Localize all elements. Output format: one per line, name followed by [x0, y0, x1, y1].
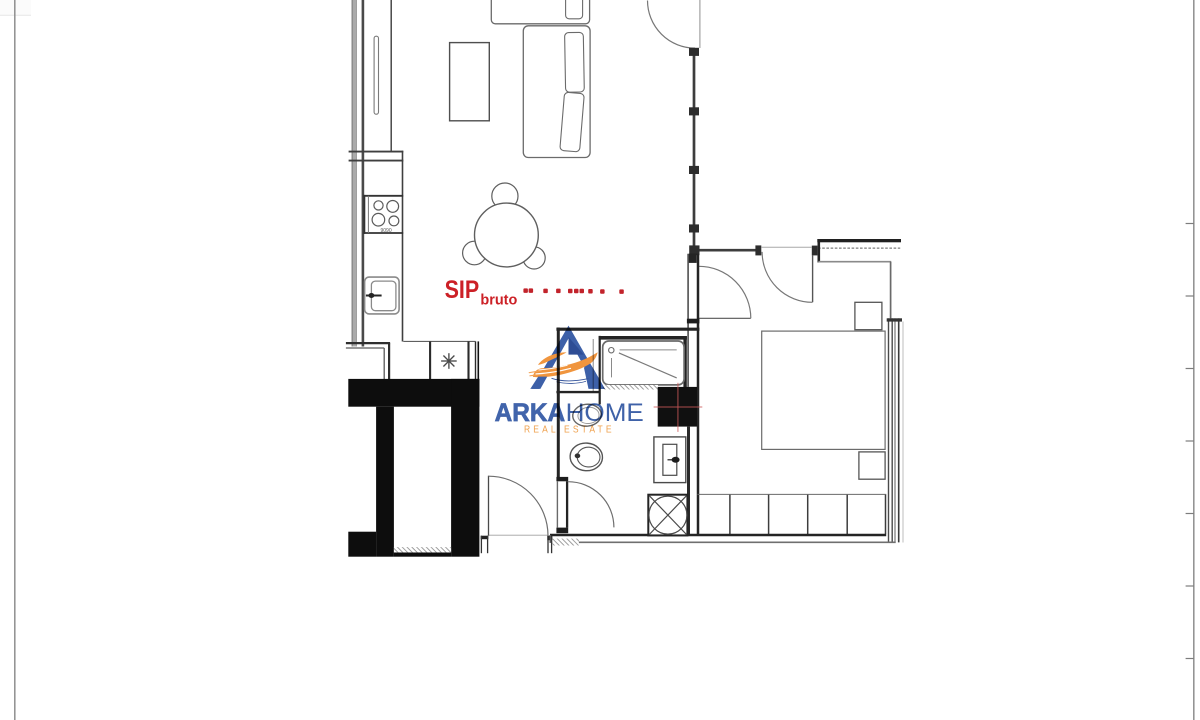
svg-text:ARKA: ARKA [495, 400, 566, 427]
svg-text:HOME: HOME [566, 400, 644, 427]
svg-text:SIP: SIP [445, 276, 480, 304]
svg-text:bruto: bruto [480, 293, 517, 309]
svg-text:REAL ESTATE: REAL ESTATE [524, 425, 615, 436]
svg-text:9090: 9090 [381, 228, 392, 234]
